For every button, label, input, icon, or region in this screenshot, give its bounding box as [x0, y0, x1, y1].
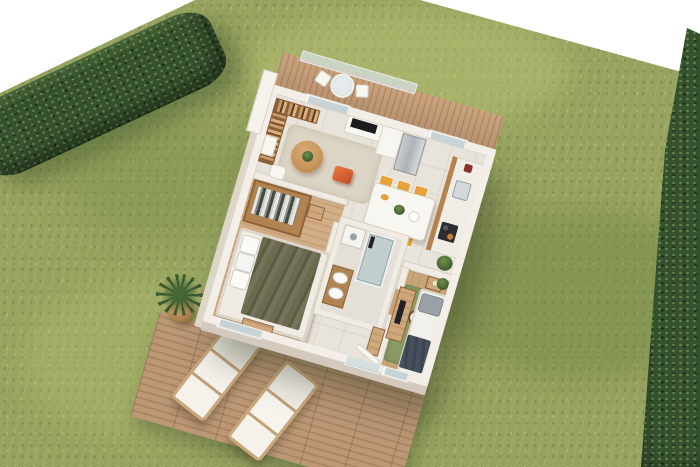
scene: [0, 0, 700, 467]
potted-plant: [156, 274, 204, 316]
bistro-chair: [355, 84, 369, 98]
